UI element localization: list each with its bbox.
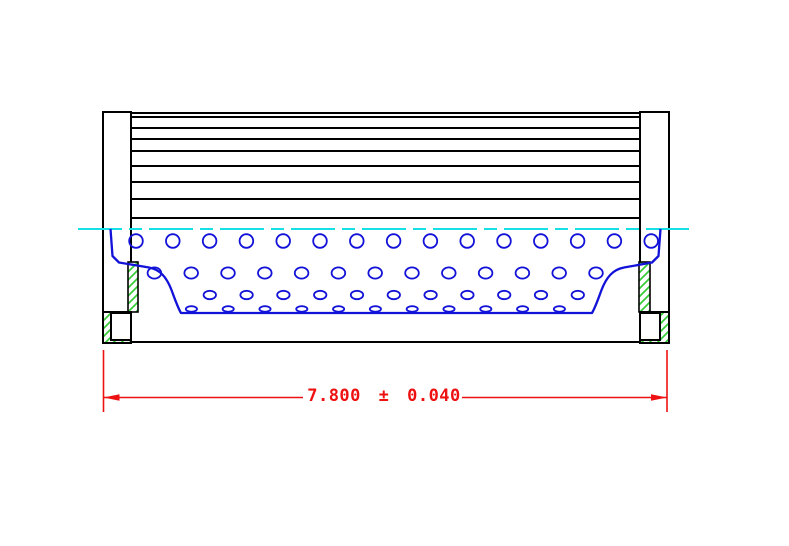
perforation-hole-row1 xyxy=(203,234,217,248)
perforation-hole-row3 xyxy=(240,291,252,299)
perforation-hole-row4 xyxy=(370,306,381,312)
perforation-hole-row3 xyxy=(424,291,436,299)
dim-arrow-right xyxy=(651,394,667,400)
perforation-hole-row3 xyxy=(277,291,289,299)
perforation-hole-row4 xyxy=(517,306,528,312)
perforation-hole-row4 xyxy=(296,306,307,312)
perforation-hole-row1 xyxy=(534,234,548,248)
perforation-hole-row3 xyxy=(351,291,363,299)
perforation-hole-row1 xyxy=(166,234,180,248)
perforation-hole-row2 xyxy=(405,267,419,278)
hatched-strip-right xyxy=(639,262,650,312)
perforation-hole-row2 xyxy=(258,267,272,278)
perforation-hole-row4 xyxy=(333,306,344,312)
perforation-hole-row4 xyxy=(443,306,454,312)
perforation-hole-row1 xyxy=(460,234,474,248)
perforation-hole-row4 xyxy=(186,306,197,312)
perforation-hole-row3 xyxy=(388,291,400,299)
dim-arrow-left xyxy=(104,394,120,400)
perforation-hole-row2 xyxy=(589,267,603,278)
perforation-hole-row1 xyxy=(608,234,622,248)
perforation-hole-row1 xyxy=(571,234,585,248)
foot-left-inner xyxy=(111,313,131,340)
perforation-hole-row4 xyxy=(223,306,234,312)
perforation-hole-row3 xyxy=(572,291,584,299)
foot-right-inner xyxy=(640,313,660,340)
perforation-hole-row3 xyxy=(498,291,510,299)
cad-drawing-canvas: 7.800 ± 0.040 xyxy=(0,0,789,546)
perforation-hole-row2 xyxy=(442,267,456,278)
perforation-hole-row2 xyxy=(552,267,566,278)
perforation-hole-row2 xyxy=(184,267,198,278)
perforation-hole-row2 xyxy=(368,267,382,278)
perforation-hole-row1 xyxy=(424,234,438,248)
perforation-hole-row2 xyxy=(516,267,530,278)
dimension-label: 7.800 ± 0.040 xyxy=(307,386,461,406)
perforation-hole-row3 xyxy=(204,291,216,299)
perforation-hole-row4 xyxy=(554,306,565,312)
end-cap-left xyxy=(103,112,131,312)
core-profile-outline xyxy=(111,229,661,313)
filter-cross-section-drawing xyxy=(0,0,789,546)
perforation-hole-row1 xyxy=(313,234,327,248)
perforation-hole-row1 xyxy=(497,234,511,248)
perforation-hole-row1 xyxy=(240,234,254,248)
perforation-hole-row2 xyxy=(332,267,346,278)
perforation-hole-row1 xyxy=(350,234,364,248)
perforation-hole-row2 xyxy=(295,267,309,278)
perforation-hole-row1 xyxy=(276,234,290,248)
perforation-hole-row2 xyxy=(479,267,493,278)
perforation-hole-row3 xyxy=(314,291,326,299)
perforation-hole-row4 xyxy=(407,306,418,312)
perforation-hole-row3 xyxy=(461,291,473,299)
hatched-strip-left xyxy=(128,262,138,312)
perforation-hole-row3 xyxy=(535,291,547,299)
perforation-hole-row2 xyxy=(221,267,235,278)
perforation-hole-row4 xyxy=(480,306,491,312)
perforation-hole-row4 xyxy=(259,306,270,312)
perforation-hole-row1 xyxy=(387,234,401,248)
